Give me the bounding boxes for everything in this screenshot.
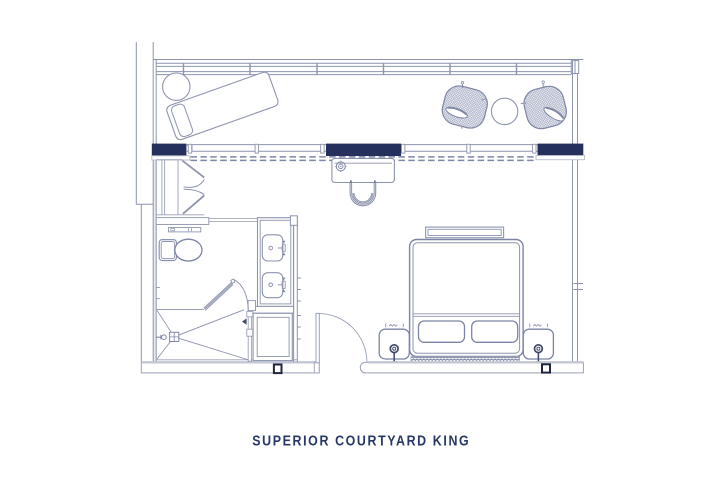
svg-text:SUPERIOR COURTYARD KING: SUPERIOR COURTYARD KING (252, 432, 470, 449)
